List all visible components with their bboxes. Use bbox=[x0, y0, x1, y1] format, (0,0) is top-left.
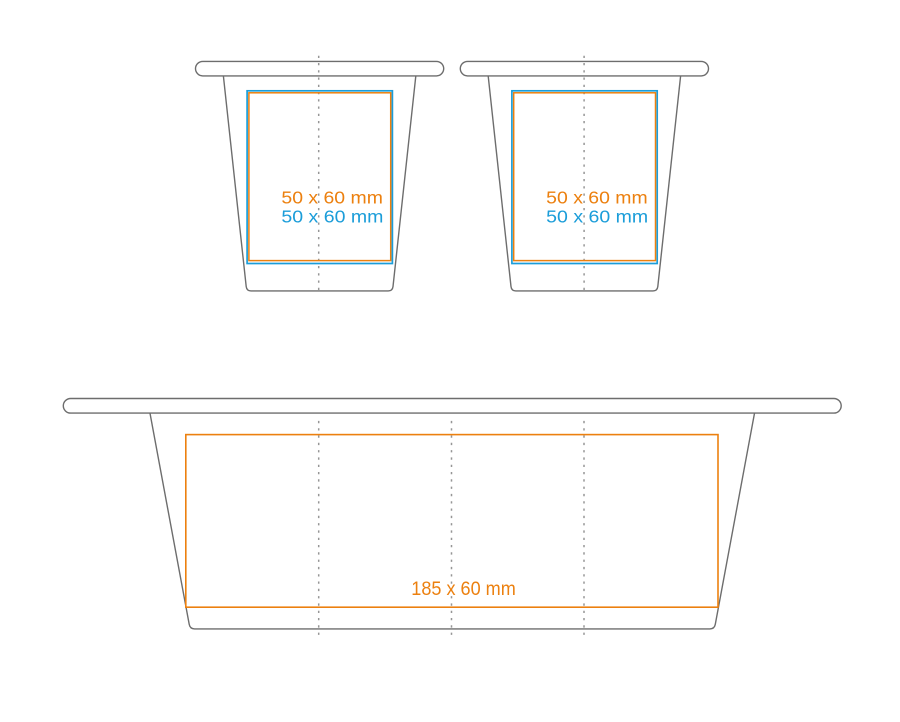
svg-text:50 x 60 mm: 50 x 60 mm bbox=[281, 188, 383, 208]
svg-text:50 x 60 mm: 50 x 60 mm bbox=[546, 207, 648, 227]
svg-text:50 x 60 mm: 50 x 60 mm bbox=[546, 188, 648, 208]
svg-text:50 x 60 mm: 50 x 60 mm bbox=[281, 207, 383, 227]
svg-text:185 x 60 mm: 185 x 60 mm bbox=[411, 578, 516, 600]
